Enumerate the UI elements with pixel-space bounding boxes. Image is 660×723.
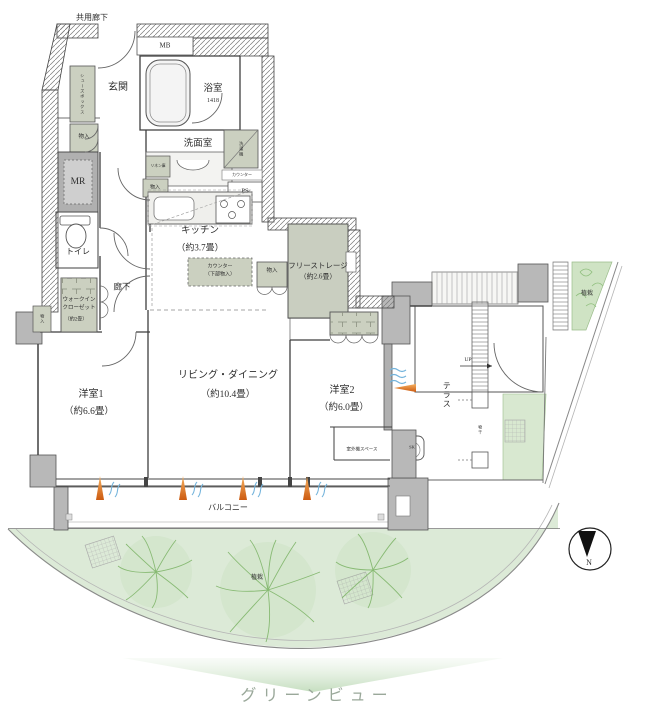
stairs-up: [472, 302, 488, 392]
label-linen: リネン庫: [150, 164, 165, 168]
label-ps: PS: [241, 189, 248, 196]
label-mb: MB: [160, 42, 171, 49]
label-wic-1: ウォークイン: [62, 298, 95, 304]
label-washroom: 洗面室: [184, 140, 213, 150]
label-up: UP: [464, 358, 471, 364]
label-shoes-box: シューズボックス: [80, 73, 84, 115]
label-sk: SK: [409, 446, 415, 451]
label-entrance: 玄関: [108, 83, 128, 94]
label-bedroom1: 洋室1: [79, 390, 104, 401]
label-bedroom2-size: （約6.0畳）: [319, 404, 369, 414]
label-storage-entrance: 物入: [78, 135, 89, 141]
label-common-corridor: 共用廊下: [76, 14, 108, 22]
label-bedroom2: 洋室2: [330, 386, 355, 397]
label-free-storage-size: （約2.6畳）: [300, 273, 337, 280]
label-planting-garden: 植栽: [251, 575, 263, 581]
label-terrace: テラス: [442, 382, 450, 409]
tree: [335, 532, 411, 608]
structure-block: [518, 264, 548, 302]
label-bedroom1-size: （約6.6畳）: [64, 408, 114, 418]
free-storage-room: [288, 224, 348, 318]
label-planting-top: 植栽: [581, 291, 593, 297]
label-storage-wall: 物入: [40, 314, 44, 324]
label-green-view: グリーンビュー: [240, 689, 393, 706]
label-laundry-pole: 物干: [478, 425, 482, 435]
floorplan-page: 共用廊下 MB 玄関 浴室 1418 洗面室 洗濯機 カウンター PS リネン庫…: [0, 0, 660, 723]
label-north: N: [586, 559, 592, 567]
label-kitchen: キッチン: [181, 227, 219, 237]
label-mr: MR: [71, 178, 86, 188]
label-counter-lower-2: （下部物入）: [205, 272, 235, 277]
label-hallway: 廊下: [113, 283, 130, 292]
label-bathroom: 浴室: [203, 85, 222, 95]
label-wic-2: クローゼット: [62, 306, 95, 312]
label-counter-lower-1: カウンター: [207, 264, 232, 269]
label-washer: 洗濯機: [239, 141, 243, 157]
label-free-storage: フリーストレージ: [288, 262, 347, 270]
label-living-dining: リビング・ダイニング: [178, 371, 278, 382]
stove: [216, 196, 250, 223]
label-balcony: バルコニー: [208, 504, 248, 512]
bathtub: [146, 60, 190, 126]
label-wic-size: （約2畳）: [65, 317, 88, 322]
slat-band: [553, 262, 568, 330]
label-kitchen-size: （約3.7畳）: [176, 243, 223, 252]
label-storage-washroom: 物入: [150, 185, 160, 190]
label-storage-living: 物入: [266, 269, 277, 275]
toilet-bowl: [66, 224, 86, 248]
label-outdoor-unit: 室外機スペース: [347, 448, 378, 453]
label-bathroom-size: 1418: [207, 98, 219, 104]
kitchen-sink: [154, 197, 194, 220]
label-counter: カウンター: [232, 173, 252, 177]
label-living-dining-size: （約10.4畳）: [201, 391, 256, 401]
label-toilet: トイレ: [66, 248, 90, 256]
floorplan-drawing: [0, 0, 660, 723]
